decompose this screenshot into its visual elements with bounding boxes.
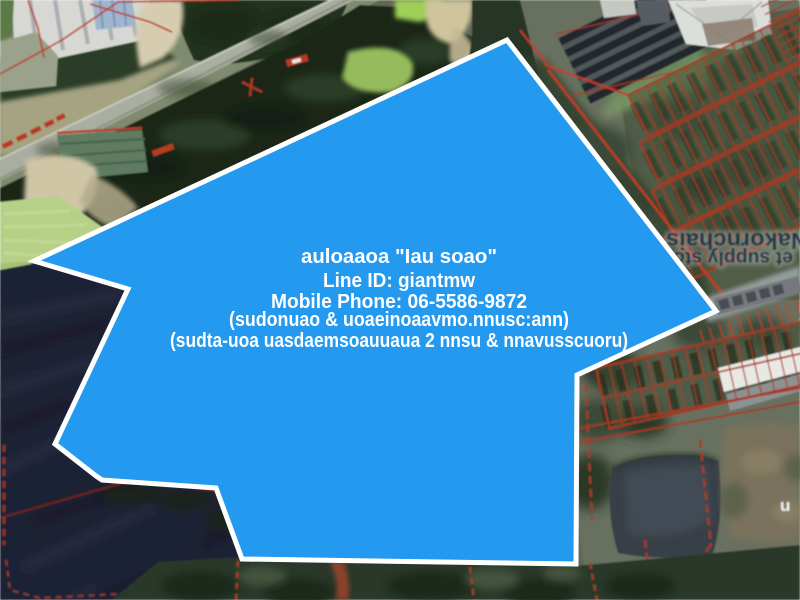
svg-text:u: u — [780, 496, 790, 515]
svg-text:auloaaoa "Iau soao": auloaaoa "Iau soao" — [301, 246, 497, 268]
svg-text:(sudta-uoa uasdaemsoauuaua 2 n: (sudta-uoa uasdaemsoauuaua 2 nnsu & nnav… — [170, 330, 628, 352]
svg-text:(sudonuao & uoaeinoaavmo.nnusc: (sudonuao & uoaeinoaavmo.nnusc:ann) — [229, 309, 569, 331]
svg-text:et supply sto: et supply sto — [673, 247, 793, 268]
svg-text:Line ID: giantmw: Line ID: giantmw — [323, 270, 475, 292]
